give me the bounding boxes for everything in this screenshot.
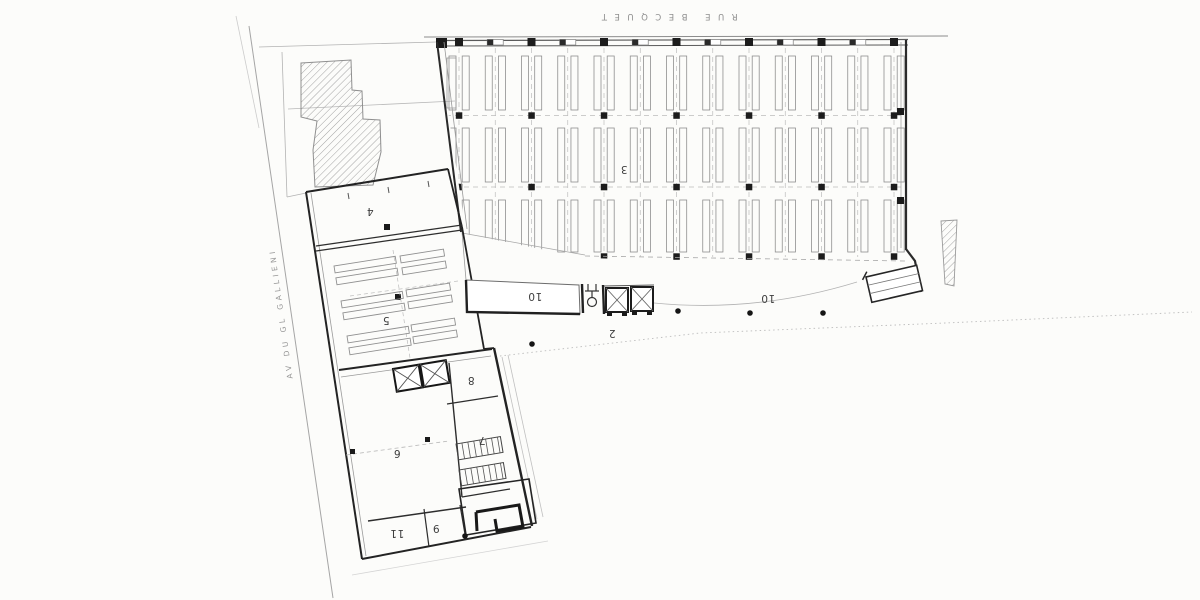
room-label-8: 8 [467,374,474,386]
market-hall-top-wall [437,38,908,46]
room-label-9: 9 [432,522,439,534]
room-label-3: 3 [620,163,627,175]
scanned-floor-plan: RUE BECQUET AV DU GL GALLIENI 3 4 5 10 1… [0,0,1200,600]
floor-plan-linework [0,0,1200,600]
yard-elements [466,260,923,346]
market-hall-bays [446,48,905,260]
room-label-6: 6 [393,447,400,459]
hatched-neighbor-parcel [941,220,957,286]
left-wing-walls [306,169,494,559]
room-label-2: 2 [608,327,615,339]
room-label-4: 4 [366,205,373,217]
hoist-symbol [585,284,599,307]
street-name-rue-becquet: RUE BECQUET [583,11,749,21]
ramp-structure [861,260,923,303]
room-label-11: 11 [390,527,404,539]
room-label-10-dock: 10 [528,290,542,302]
room-label-10-yard: 10 [761,292,775,304]
elevator-shafts-yard [604,285,654,316]
room-label-5: 5 [382,314,389,326]
hatched-existing-building [301,60,381,187]
elevator-shafts-building [393,360,450,392]
storage-racks-room5 [334,249,457,355]
room-label-7: 7 [478,434,485,446]
